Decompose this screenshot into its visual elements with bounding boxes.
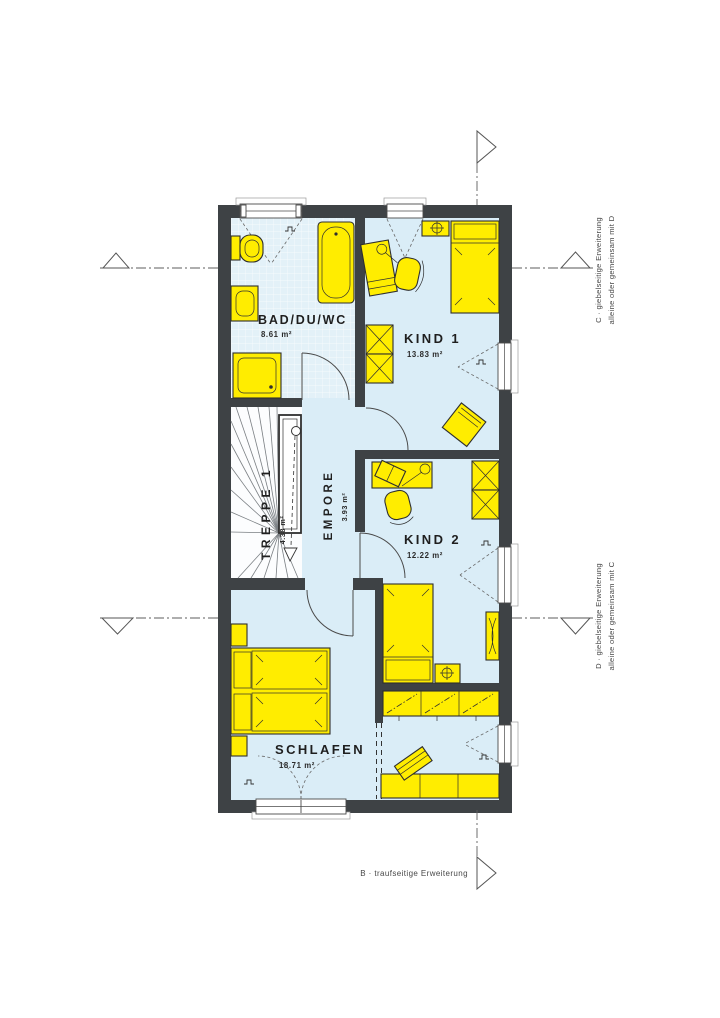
arrow-top-icon (477, 131, 496, 163)
annotation-c-line1: C · giebelseitige Erweiterung (594, 217, 603, 323)
arrow-left-d-icon (102, 618, 133, 634)
area-bad: 8.61 m² (261, 330, 292, 339)
area-treppe: 4.38 m² (278, 516, 287, 545)
bathtub (318, 222, 354, 303)
window-ankleide-right (498, 722, 518, 766)
dresser-kind2 (486, 612, 499, 660)
wardrobe-row (383, 691, 499, 721)
stair-walkline-start (292, 427, 301, 436)
annotation-b: B · traufseitige Erweiterung (360, 869, 468, 878)
window-kind1-right (498, 340, 518, 393)
window-kind2-right (498, 544, 518, 606)
area-schlafen: 18.71 m² (279, 761, 315, 770)
label-kind1: KIND 1 (404, 331, 461, 346)
arrow-right-c-icon (561, 252, 590, 268)
area-kind2: 12.22 m² (407, 551, 443, 560)
nightstand-lamp-kind1 (422, 221, 449, 236)
area-kind1: 13.83 m² (407, 350, 443, 359)
area-empore: 3.93 m² (340, 493, 349, 522)
nightstand-south (231, 736, 247, 756)
window-bad-top (236, 198, 306, 218)
shower (233, 353, 281, 398)
label-empore: EMPORE (323, 470, 335, 541)
toilet (231, 235, 263, 262)
annotation-c-line2: alleine oder gemeinsam mit D (607, 215, 616, 324)
bed-kind2 (383, 584, 433, 683)
nightstand-north (231, 624, 247, 646)
wardrobe-kind2 (472, 461, 499, 519)
double-bed (231, 648, 330, 734)
floor-plan-page: BAD/DU/WC 8.61 m² KIND 1 13.83 m² KIND 2… (0, 0, 720, 1018)
label-kind2: KIND 2 (404, 532, 461, 547)
arrow-right-d-icon (561, 618, 590, 634)
window-kind1-top (384, 198, 426, 218)
floor-plan: BAD/DU/WC 8.61 m² KIND 1 13.83 m² KIND 2… (0, 0, 720, 1018)
annotation-d-line1: D · giebelseitige Erweiterung (594, 563, 603, 669)
annotation-d-line2: alleine oder gemeinsam mit C (607, 561, 616, 670)
desk-kind2 (372, 460, 432, 488)
arrow-bottom-icon (477, 857, 496, 889)
arrow-left-c-icon (103, 253, 129, 268)
wardrobe-kind1 (366, 325, 393, 383)
bed-kind1 (451, 221, 499, 313)
nightstand-lamp-kind2 (435, 664, 460, 683)
label-schlafen: SCHLAFEN (275, 742, 365, 757)
washbasin (231, 286, 258, 321)
label-bad: BAD/DU/WC (258, 313, 347, 327)
label-treppe: TREPPE 1 (259, 466, 273, 560)
